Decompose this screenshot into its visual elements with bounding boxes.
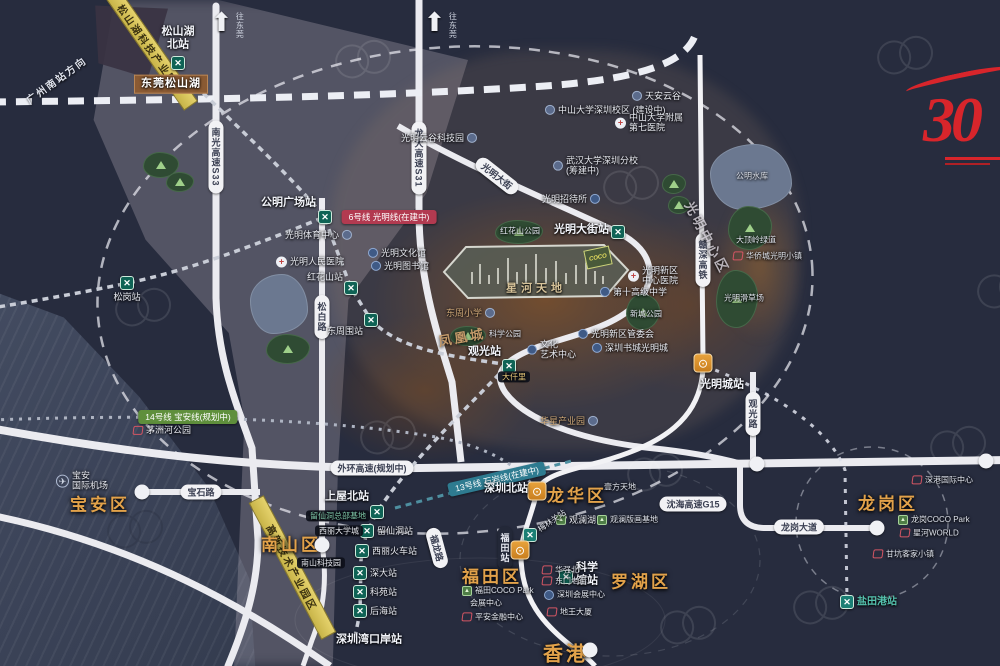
station-label: 光明城站 bbox=[700, 379, 744, 392]
poi-科学公园: 科学公园 bbox=[489, 329, 521, 338]
poi-label: 光明图书馆 bbox=[384, 261, 429, 271]
poi-平安金融中心: 平安金融中心 bbox=[462, 612, 523, 621]
poi-光明图书馆: 光明图书馆 bbox=[371, 261, 429, 271]
poi-label: 华强北 bbox=[555, 565, 579, 574]
compass-arrow: ⬆往东莞 bbox=[424, 12, 459, 39]
poi-新城公园: 新城公园 bbox=[630, 309, 662, 318]
poi-红花山公园: 红花山公园 bbox=[500, 226, 540, 235]
direction-text: 往东莞 bbox=[234, 12, 245, 39]
poi-label: 南山科技园 bbox=[297, 557, 345, 568]
circle-icon bbox=[545, 105, 555, 115]
poi-label: 大仟里 bbox=[498, 371, 530, 382]
poi-留仙洞总部基地: 留仙洞总部基地 bbox=[306, 510, 370, 521]
station-label: 松岗站 bbox=[113, 292, 140, 302]
poi-中山大学附属 第七医院: +中山大学附属 第七医院 bbox=[615, 113, 683, 134]
compass-arrow: ⬆往东莞 bbox=[211, 12, 246, 39]
rail-to-guangzhou-dashed bbox=[0, 28, 697, 102]
map-canvas: 星河天地 COCO 30 广州南站方向 松山湖科技产业园高新技术产业园区南光高速… bbox=[0, 0, 1000, 666]
poi-东周小学: 东周小学 bbox=[446, 308, 495, 318]
green-icon: ▲ bbox=[898, 515, 908, 525]
poi-会展中心: 会展中心 bbox=[470, 598, 502, 607]
district-label-宝安区: 宝安区 bbox=[70, 491, 130, 516]
poi-壹方天地: 壹方天地 bbox=[604, 482, 636, 491]
metro-station-icon: ✕ bbox=[120, 276, 134, 290]
station-label: 深圳北站 bbox=[484, 483, 528, 496]
poi-label: 观澜湖 bbox=[569, 515, 596, 525]
poi-光明新区管委会: 光明新区管委会 bbox=[578, 329, 654, 339]
metro-station-icon: ✕ bbox=[353, 604, 367, 618]
station-label: 公明广场站 bbox=[261, 197, 316, 210]
station-label: 留仙洞站 bbox=[377, 526, 413, 536]
poi-东门老街: 东门老街 bbox=[542, 576, 587, 585]
direction-text: 往东莞 bbox=[447, 12, 458, 39]
rail-station-icon: ⊙ bbox=[694, 354, 713, 373]
metro-station-icon: ✕ bbox=[318, 210, 332, 224]
poi-光明文化馆: 光明文化馆 bbox=[368, 248, 426, 258]
station-label: 后海站 bbox=[370, 606, 397, 616]
poi-label: 星河WORLD bbox=[913, 528, 959, 537]
road-pill: 沈海高速G15 bbox=[659, 497, 726, 512]
rail-station-icon: ⊙ bbox=[528, 482, 547, 501]
poi-华强北: 华强北 bbox=[542, 565, 579, 574]
poi-label: 甘坑客家小镇 bbox=[886, 549, 934, 558]
circle-icon bbox=[342, 230, 352, 240]
poi-label: 光明滑草场 bbox=[724, 293, 764, 302]
station-label: 观光站 bbox=[468, 346, 501, 359]
cross-icon: + bbox=[615, 118, 626, 129]
road-node bbox=[750, 457, 765, 472]
poi-深港国际中心: 深港国际中心 bbox=[912, 475, 973, 484]
poi-label: 光明人民医院 bbox=[290, 257, 344, 267]
lake bbox=[250, 274, 308, 334]
district-label-龙华区: 龙华区 bbox=[547, 482, 607, 507]
metro-station-icon: ✕ bbox=[355, 544, 369, 558]
poi-label: 华侨城光明小镇 bbox=[746, 251, 802, 260]
red-icon bbox=[911, 476, 922, 485]
poi-公明水库: 公明水库 bbox=[736, 171, 768, 180]
poi-深圳书城光明城: 深圳书城光明城 bbox=[592, 343, 668, 353]
red-icon bbox=[872, 550, 883, 559]
district-label-南山区: 南山区 bbox=[261, 531, 321, 556]
metro-station-icon: ✕ bbox=[344, 281, 358, 295]
poi-label: 深港国际中心 bbox=[925, 475, 973, 484]
park-triangle-icon bbox=[283, 345, 293, 353]
road-pill: 南光高速S33 bbox=[209, 120, 224, 193]
poi-观澜版画基地: ▲观澜版画基地 bbox=[597, 515, 658, 525]
hongkong-node bbox=[583, 643, 598, 658]
station-label: 红花山站 bbox=[307, 272, 343, 282]
park-triangle-icon bbox=[156, 161, 166, 169]
blue-icon bbox=[590, 194, 600, 204]
poi-深圳湾口岸站: 深圳湾口岸站 bbox=[336, 634, 402, 647]
logo-underline-2 bbox=[945, 163, 990, 165]
metro-station-icon: ✕ bbox=[840, 595, 854, 609]
park-triangle-icon bbox=[669, 180, 679, 188]
poi-label: 龙岗COCO Park bbox=[911, 515, 970, 524]
road-pill: 外环高速(规划中) bbox=[331, 461, 414, 476]
station-label: 深大站 bbox=[370, 568, 397, 578]
poi-label: 留仙洞总部基地 bbox=[306, 510, 370, 521]
circle-icon bbox=[485, 308, 495, 318]
blue-icon bbox=[592, 343, 602, 353]
metro-station-icon: ✕ bbox=[353, 585, 367, 599]
poi-光明滑草场: 光明滑草场 bbox=[724, 293, 764, 302]
circle-icon bbox=[632, 91, 642, 101]
poi-label: 新城公园 bbox=[630, 309, 662, 318]
poi-深圳会展中心: 深圳会展中心 bbox=[544, 590, 605, 600]
poi-龙岗COCO Park: ▲龙岗COCO Park bbox=[898, 515, 970, 525]
poi-大顶岭绿道: 大顶岭绿道 bbox=[736, 235, 776, 244]
metro-line-badge: 6号线 光明线(在建中) bbox=[342, 210, 437, 224]
red-icon bbox=[461, 613, 472, 622]
poi-label: 光明新区管委会 bbox=[591, 329, 654, 339]
poi-label: 东门老街 bbox=[555, 576, 587, 585]
rail-station-icon: ⊙ bbox=[511, 541, 530, 560]
poi-华侨城光明小镇: 华侨城光明小镇 bbox=[733, 251, 802, 260]
district-label-福田区: 福田区 bbox=[462, 563, 522, 588]
blue-icon bbox=[578, 329, 588, 339]
station-label: 科苑站 bbox=[370, 587, 397, 597]
plane-icon: ✈ bbox=[56, 475, 69, 488]
poi-label: 武汉大学深圳分校 (筹建中) bbox=[566, 156, 638, 177]
poi-光明云谷科技园: 光明云谷科技园 bbox=[401, 133, 477, 143]
metro-station-icon: ✕ bbox=[611, 225, 625, 239]
blue-icon bbox=[544, 590, 554, 600]
poi-label: 光明文化馆 bbox=[381, 248, 426, 258]
poi-label: 东莞松山湖 bbox=[134, 75, 208, 94]
red-icon bbox=[132, 426, 143, 435]
poi-第十高级中学: 第十高级中学 bbox=[600, 287, 667, 297]
park-triangle-icon bbox=[175, 178, 185, 186]
anniversary-30-logo: 30 bbox=[905, 55, 1000, 195]
road-pill: 龙岗大道 bbox=[774, 520, 824, 535]
project-name: 星河天地 bbox=[506, 283, 566, 296]
station-label: 盐田港站 bbox=[857, 596, 897, 608]
park-triangle-icon bbox=[745, 224, 755, 232]
cross-icon: + bbox=[276, 257, 287, 268]
station-label: 上屋北站 bbox=[325, 491, 369, 504]
poi-华星产业园: 华星产业园 bbox=[540, 416, 598, 426]
metro-station-icon: ✕ bbox=[370, 505, 384, 519]
poi-福田COCO Park: ▲福田COCO Park bbox=[462, 586, 534, 596]
poi-label: 会展中心 bbox=[470, 598, 502, 607]
poi-label: 茅洲河公园 bbox=[146, 425, 191, 435]
district-label-罗湖区: 罗湖区 bbox=[611, 568, 671, 593]
poi-文化 艺术中心: 文化 艺术中心 bbox=[527, 340, 576, 361]
cross-icon: + bbox=[628, 271, 639, 282]
poi-大仟里: 大仟里 bbox=[498, 371, 530, 382]
poi-光明人民医院: +光明人民医院 bbox=[276, 257, 344, 268]
poi-label: 光明体育中心 bbox=[285, 230, 339, 240]
poi-label: 华星产业园 bbox=[540, 416, 585, 426]
green-icon: ▲ bbox=[597, 515, 607, 525]
red-icon bbox=[541, 577, 552, 586]
metro-line-badge: 14号线 宝安线(规划中) bbox=[138, 410, 237, 424]
circle-icon bbox=[588, 416, 598, 426]
poi-label: 中山大学附属 第七医院 bbox=[629, 113, 683, 134]
poi-东莞松山湖: 东莞松山湖 bbox=[134, 75, 208, 94]
logo-underline bbox=[945, 157, 1000, 160]
poi-label: 红花山公园 bbox=[500, 226, 540, 235]
poi-光明新区 中心医院: +光明新区 中心医院 bbox=[628, 266, 678, 287]
poi-茅洲河公园: 茅洲河公园 bbox=[133, 425, 191, 435]
metro-station-icon: ✕ bbox=[353, 566, 367, 580]
poi-label: 深圳会展中心 bbox=[557, 590, 605, 599]
north-arrow-icon: ⬆ bbox=[424, 12, 446, 33]
red-icon bbox=[899, 529, 910, 538]
red-icon bbox=[541, 566, 552, 575]
station-label: 东周围站 bbox=[327, 326, 363, 336]
poi-label: 平安金融中心 bbox=[475, 612, 523, 621]
poi-label: 第十高级中学 bbox=[613, 287, 667, 297]
poi-label: 文化 艺术中心 bbox=[540, 340, 576, 361]
poi-光明招待所: 光明招待所 bbox=[542, 194, 600, 204]
road-node bbox=[870, 521, 885, 536]
poi-label: 观澜版画基地 bbox=[610, 515, 658, 524]
station-label: 西丽火车站 bbox=[372, 546, 417, 556]
metro-station-icon: ✕ bbox=[364, 313, 378, 327]
circle-icon bbox=[467, 133, 477, 143]
blue-icon bbox=[600, 287, 610, 297]
poi-label: 公明水库 bbox=[736, 171, 768, 180]
poi-甘坑客家小镇: 甘坑客家小镇 bbox=[873, 549, 934, 558]
north-arrow-icon: ⬆ bbox=[211, 12, 233, 33]
blue-icon bbox=[527, 345, 537, 355]
blue-icon bbox=[371, 261, 381, 271]
poi-label: 壹方天地 bbox=[604, 482, 636, 491]
poi-光明体育中心: 光明体育中心 bbox=[285, 230, 352, 240]
poi-label: 光明新区 中心医院 bbox=[642, 266, 678, 287]
poi-label: 深圳湾口岸站 bbox=[336, 634, 402, 647]
poi-label: 西丽大学城 bbox=[315, 525, 363, 536]
poi-武汉大学深圳分校 (筹建中): 武汉大学深圳分校 (筹建中) bbox=[553, 156, 638, 177]
poi-label: 大顶岭绿道 bbox=[736, 235, 776, 244]
poi-南山科技园: 南山科技园 bbox=[297, 557, 345, 568]
blue-icon bbox=[368, 248, 378, 258]
circle-icon bbox=[553, 161, 563, 171]
district-label-龙岗区: 龙岗区 bbox=[858, 490, 918, 515]
poi-label: 光明招待所 bbox=[542, 194, 587, 204]
poi-label: 地王大厦 bbox=[560, 607, 592, 616]
road-node bbox=[979, 454, 994, 469]
red-icon bbox=[732, 252, 743, 261]
poi-label: 福田COCO Park bbox=[475, 586, 534, 595]
road-nanguang-expressway-s33 bbox=[216, 6, 258, 666]
poi-星河WORLD: 星河WORLD bbox=[900, 528, 959, 537]
station-label: 光明大街站 bbox=[554, 224, 609, 237]
road-longda-expressway-s31 bbox=[419, 0, 461, 462]
poi-地王大厦: 地王大厦 bbox=[547, 607, 592, 616]
road-pill: 宝石路 bbox=[180, 485, 221, 500]
poi-label: 东周小学 bbox=[446, 308, 482, 318]
logo-number: 30 bbox=[923, 83, 979, 157]
station-label: 松山湖 北站 bbox=[162, 25, 195, 50]
poi-label: 天安云谷 bbox=[645, 91, 681, 101]
poi-天安云谷: 天安云谷 bbox=[632, 91, 681, 101]
poi-label: 深圳书城光明城 bbox=[605, 343, 668, 353]
metro-station-icon: ✕ bbox=[171, 56, 185, 70]
road-node bbox=[135, 485, 150, 500]
poi-label: 光明云谷科技园 bbox=[401, 133, 464, 143]
road-g15 bbox=[740, 464, 877, 528]
poi-宝安 国际机场: ✈宝安 国际机场 bbox=[56, 471, 108, 492]
red-icon bbox=[546, 608, 557, 617]
poi-西丽大学城: 西丽大学城 bbox=[315, 525, 363, 536]
poi-label: 科学公园 bbox=[489, 329, 521, 338]
road-node bbox=[315, 538, 330, 553]
rail-intercity-dotted bbox=[705, 366, 847, 600]
road-pill: 观光路 bbox=[746, 392, 761, 436]
green-icon: ▲ bbox=[462, 586, 472, 596]
poi-label: 宝安 国际机场 bbox=[72, 471, 108, 492]
